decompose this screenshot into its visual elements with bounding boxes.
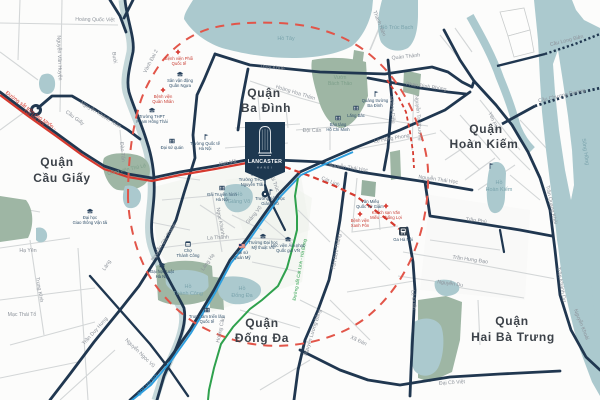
svg-text:Ba Đình: Ba Đình [241,101,291,115]
svg-text:Đống Đa: Đống Đa [231,293,252,299]
svg-text:Đại sứ quán: Đại sứ quán [161,145,184,150]
svg-text:Đội Cấn: Đội Cấn [303,128,322,134]
svg-text:Quận: Quận [245,316,278,330]
svg-text:Nguyễn Trãi: Nguyễn Trãi [241,182,264,187]
svg-text:Hoàng Quốc Việt: Hoàng Quốc Việt [75,17,115,24]
svg-text:Quận: Quận [469,122,502,136]
svg-text:Bách Thảo: Bách Thảo [328,81,352,87]
svg-text:Quốc tế: Quốc tế [200,319,215,324]
svg-text:Hoàn Kiếm: Hoàn Kiếm [486,187,513,193]
svg-text:Hồ Trúc Bạch: Hồ Trúc Bạch [381,25,414,31]
svg-text:Thành Công: Thành Công [173,291,203,297]
svg-text:Quốc gia VN: Quốc gia VN [276,248,300,253]
svg-text:Xanh Pôn: Xanh Pôn [351,223,370,228]
svg-text:Quần Ngựa: Quần Ngựa [169,83,192,88]
svg-text:Hồ: Hồ [239,286,246,292]
svg-text:Lê Duẩn: Lê Duẩn [409,290,417,310]
svg-text:Hồ: Hồ [496,180,503,186]
svg-text:HANOI: HANOI [257,166,273,170]
svg-text:Hà Nội: Hà Nội [156,274,169,279]
svg-text:Quốc Tử Giám: Quốc Tử Giám [356,204,384,209]
svg-text:Phạm Hồng Thái: Phạm Hồng Thái [136,119,167,124]
svg-text:Hạ Yên: Hạ Yên [19,248,36,254]
svg-text:Hồ: Hồ [185,284,192,290]
svg-text:Lăng Bác: Lăng Bác [347,113,365,118]
svg-text:Ga Hà Nội: Ga Hà Nội [393,237,413,242]
svg-text:Quận: Quận [40,155,73,169]
svg-text:Hồ Chí Minh: Hồ Chí Minh [326,127,350,132]
svg-text:Cầu Giấy: Cầu Giấy [33,171,91,185]
svg-text:Ba Đình: Ba Đình [367,103,383,108]
svg-text:Hồ Tây: Hồ Tây [277,36,295,42]
svg-text:Hà Nội: Hà Nội [216,197,229,202]
svg-text:Đống Đa: Đống Đa [235,331,289,345]
svg-text:Quận: Quận [495,314,528,328]
svg-text:Giảng Võ: Giảng Võ [228,199,250,205]
svg-text:Thành Công: Thành Công [176,253,200,258]
svg-text:Giảng Võ: Giảng Võ [261,201,279,206]
svg-text:Mạc Thái Tổ: Mạc Thái Tổ [8,311,37,318]
svg-text:Quán Mỹ: Quán Mỹ [234,255,252,260]
svg-text:La Thành: La Thành [207,234,229,241]
svg-text:Miếu - Thắng Lợi: Miếu - Thắng Lợi [370,215,402,220]
svg-text:Hoàn Kiếm: Hoàn Kiếm [450,137,519,151]
svg-text:Hai Bà Trưng: Hai Bà Trưng [471,330,555,344]
svg-text:Quận: Quận [247,86,280,100]
svg-text:Hà Nội: Hà Nội [199,146,212,151]
svg-text:Quốc tế: Quốc tế [172,61,187,66]
svg-text:LANCASTER: LANCASTER [248,159,282,165]
svg-text:Giao thông Vận tải: Giao thông Vận tải [73,220,108,225]
svg-text:Quân Nhân: Quân Nhân [152,99,174,104]
